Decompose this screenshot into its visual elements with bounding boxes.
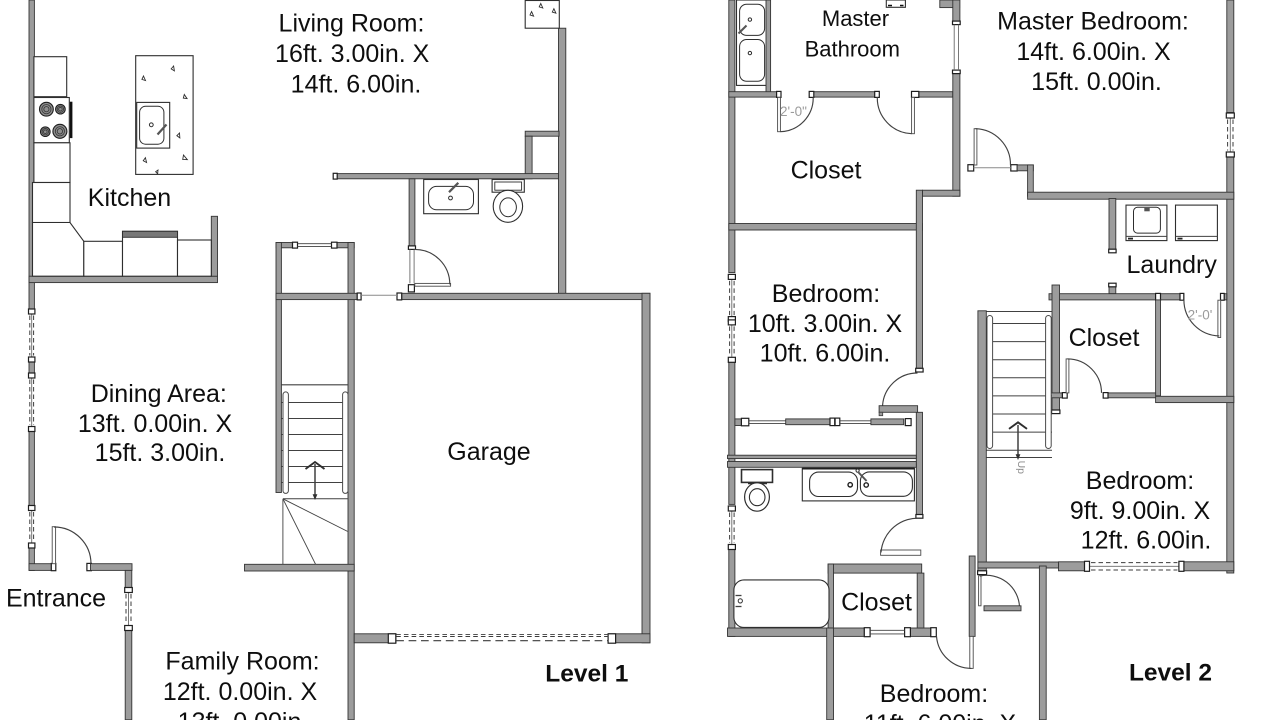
svg-text:Up: Up [1015,461,1027,475]
svg-text:Laundry: Laundry [1127,251,1218,279]
svg-text:Bathroom: Bathroom [805,37,900,62]
svg-text:Level 1: Level 1 [545,660,628,687]
svg-text:13ft. 0.00in. X: 13ft. 0.00in. X [78,410,233,438]
svg-text:16ft. 3.00in. X: 16ft. 3.00in. X [275,40,430,68]
svg-text:10ft. 6.00in.: 10ft. 6.00in. [760,340,891,368]
svg-text:12ft. 0.00in. X: 12ft. 0.00in. X [163,678,318,706]
svg-text:Closet: Closet [1069,324,1140,352]
svg-text:Bedroom:: Bedroom: [1086,467,1194,495]
svg-text:Closet: Closet [841,589,912,617]
svg-text:2'-0': 2'-0' [1188,308,1213,323]
svg-text:Entrance: Entrance [6,585,106,613]
svg-text:14ft. 6.00in. X: 14ft. 6.00in. X [1016,38,1171,66]
svg-text:Master Bedroom:: Master Bedroom: [997,8,1189,36]
svg-text:12ft. 6.00in.: 12ft. 6.00in. [1081,527,1212,555]
svg-text:Garage: Garage [447,438,530,466]
svg-text:Master: Master [822,6,889,31]
svg-text:Dining Area:: Dining Area: [91,380,227,408]
svg-text:15ft. 0.00in.: 15ft. 0.00in. [1031,68,1162,96]
svg-text:Level 2: Level 2 [1129,660,1212,687]
svg-text:2'-0": 2'-0" [780,104,807,119]
svg-text:10ft. 3.00in. X: 10ft. 3.00in. X [748,310,903,338]
svg-text:15ft. 3.00in.: 15ft. 3.00in. [95,439,226,467]
svg-text:13ft. 0.00in.: 13ft. 0.00in. [178,708,309,720]
svg-text:9ft. 9.00in. X: 9ft. 9.00in. X [1070,497,1211,525]
svg-text:14ft. 6.00in.: 14ft. 6.00in. [291,71,422,99]
svg-text:Closet: Closet [791,157,862,185]
svg-text:Bedroom:: Bedroom: [772,280,880,308]
svg-text:Living Room:: Living Room: [279,10,425,38]
svg-text:Kitchen: Kitchen [88,184,171,212]
svg-text:Bedroom:: Bedroom: [880,680,988,708]
svg-text:11ft. 6.00in. X: 11ft. 6.00in. X [864,710,1017,720]
svg-text:Family Room:: Family Room: [165,648,319,676]
